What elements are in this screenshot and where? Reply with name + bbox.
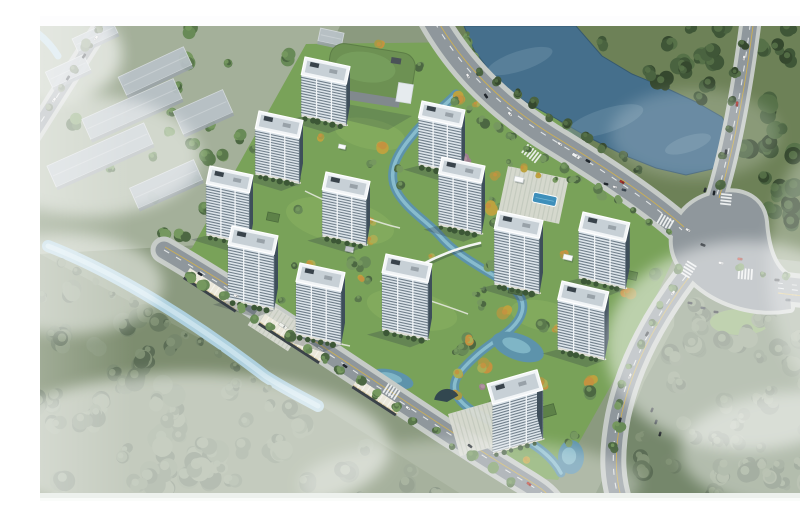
base-hedge: [593, 281, 598, 286]
base-hedge: [284, 180, 290, 186]
vehicle-body: [743, 55, 746, 60]
base-hedge: [579, 354, 584, 359]
tree-highlight: [508, 133, 512, 137]
tree-highlight: [546, 113, 550, 117]
tree-highlight: [521, 166, 524, 169]
tree-highlight: [639, 432, 644, 437]
tree-highlight: [159, 228, 165, 234]
base-hedge: [230, 300, 236, 306]
tree-highlight: [359, 276, 362, 279]
tree-highlight: [784, 52, 790, 58]
tree-highlight: [477, 69, 481, 73]
tree-highlight: [233, 363, 237, 367]
base-hedge: [523, 290, 529, 296]
tree-highlight: [377, 142, 382, 147]
tree-highlight: [561, 164, 565, 168]
tree-highlight: [705, 79, 711, 85]
tree-highlight: [615, 197, 618, 200]
tree-highlight: [305, 345, 309, 349]
tree-highlight: [554, 326, 557, 329]
tree-highlight: [586, 387, 591, 392]
tree-highlight: [507, 160, 510, 163]
tree-highlight: [452, 98, 456, 102]
tree-highlight: [491, 219, 495, 223]
tree-highlight: [637, 464, 646, 473]
base-hedge: [330, 342, 336, 348]
tree-highlight: [554, 178, 556, 180]
base-hedge: [290, 182, 295, 187]
tree-highlight: [541, 155, 545, 159]
base-hedge: [324, 236, 329, 241]
tree-highlight: [166, 338, 175, 347]
base-hedge: [271, 178, 275, 182]
tree-highlight: [611, 443, 615, 447]
tree-highlight: [464, 33, 467, 36]
tree-highlight: [479, 118, 484, 123]
base-hedge: [567, 351, 573, 357]
tree-highlight: [215, 351, 218, 354]
tree-highlight: [771, 183, 779, 191]
tree-highlight: [596, 39, 602, 45]
tree-highlight: [434, 427, 438, 431]
tree-highlight: [615, 402, 619, 406]
tree-highlight: [666, 39, 672, 45]
tree-highlight: [253, 316, 257, 320]
base-hedge: [344, 241, 349, 246]
base-hedge: [338, 124, 343, 129]
tree-highlight: [561, 251, 564, 254]
base-hedge: [472, 232, 478, 238]
tree-highlight: [570, 177, 573, 180]
tree-highlight: [348, 259, 353, 264]
vehicle-windshield: [743, 58, 745, 59]
base-hedge: [257, 306, 263, 312]
tree-highlight: [480, 363, 486, 369]
tree-highlight: [455, 370, 460, 375]
tree-highlight: [495, 79, 499, 83]
base-hedge: [323, 121, 327, 125]
tree-highlight: [285, 332, 290, 337]
tree-highlight: [667, 229, 670, 232]
bottom-frame-edge: [40, 498, 800, 501]
tree-highlight: [396, 165, 401, 170]
tree-highlight: [221, 292, 225, 296]
tree-highlight: [474, 292, 477, 295]
tree-highlight: [398, 182, 402, 186]
base-hedge: [264, 307, 270, 313]
aerial-rendering-frame: [40, 16, 800, 501]
tree-highlight: [293, 264, 296, 267]
tree-highlight: [357, 375, 361, 379]
base-hedge: [329, 122, 335, 128]
tree-highlight: [587, 377, 592, 382]
tree-highlight: [465, 337, 470, 342]
base-hedge: [358, 244, 363, 249]
tree-highlight: [366, 278, 369, 281]
tree-highlight: [571, 432, 575, 436]
base-hedge: [305, 337, 310, 342]
tree-highlight: [789, 151, 798, 160]
tree-highlight: [485, 203, 491, 209]
tree-highlight: [740, 40, 745, 45]
tree-highlight: [763, 97, 771, 105]
tree-highlight: [537, 321, 542, 326]
tree-highlight: [531, 99, 535, 103]
tree-highlight: [515, 90, 519, 94]
base-hedge: [573, 352, 579, 358]
tree-highlight: [357, 296, 360, 299]
base-hedge: [277, 178, 283, 184]
tree-highlight: [182, 332, 185, 335]
tree-highlight: [666, 459, 672, 465]
base-hedge: [251, 305, 257, 311]
base-hedge: [222, 239, 226, 243]
tree-highlight: [369, 161, 373, 165]
base-hedge: [603, 284, 607, 288]
tree-highlight: [296, 207, 300, 211]
base-hedge: [399, 334, 403, 338]
base-hedge: [439, 226, 443, 230]
tree-highlight: [564, 121, 568, 125]
base-hedge: [581, 278, 587, 284]
base-hedge: [459, 229, 465, 235]
tree-highlight: [759, 171, 767, 179]
base-hedge: [516, 289, 521, 294]
mist-patch: [610, 89, 780, 179]
base-hedge: [214, 237, 218, 241]
tree-highlight: [412, 417, 416, 421]
base-hedge: [411, 336, 417, 342]
base-hedge: [383, 330, 389, 336]
tree-highlight: [594, 185, 599, 190]
tree-highlight: [495, 125, 499, 129]
tree-highlight: [238, 305, 242, 309]
tree-highlight: [201, 150, 208, 157]
tree-highlight: [377, 42, 381, 46]
tree-highlight: [615, 422, 619, 426]
community-entry: [396, 82, 414, 103]
base-hedge: [614, 286, 619, 291]
tree-highlight: [477, 300, 482, 305]
base-hedge: [311, 339, 315, 343]
tree-highlight: [279, 298, 282, 301]
vehicle: [743, 55, 746, 60]
tree: [165, 346, 176, 357]
base-hedge: [501, 285, 507, 291]
tree-highlight: [733, 69, 737, 73]
tree-highlight: [480, 385, 483, 388]
tree-highlight: [373, 390, 378, 395]
tree-highlight: [487, 260, 492, 265]
base-hedge: [352, 243, 357, 248]
tree-highlight: [198, 340, 201, 343]
top-frame-band: [40, 16, 800, 26]
tree-highlight: [235, 132, 241, 138]
tree-highlight: [176, 229, 183, 236]
tree-highlight: [395, 403, 399, 407]
tree-highlight: [706, 44, 714, 52]
base-hedge: [263, 175, 269, 181]
left-haze: [40, 26, 135, 493]
base-hedge: [426, 167, 431, 172]
tree-highlight: [282, 51, 289, 58]
tree-highlight: [716, 181, 720, 185]
base-hedge: [258, 175, 262, 179]
tree-highlight: [760, 42, 766, 48]
tree-highlight: [493, 173, 497, 177]
tree-highlight: [526, 147, 529, 150]
tree-highlight: [636, 452, 643, 459]
base-hedge: [325, 342, 329, 346]
tree-highlight: [474, 102, 477, 105]
tree-highlight: [567, 440, 570, 443]
base-hedge: [589, 356, 594, 361]
tree-highlight: [599, 144, 603, 148]
tree-highlight: [466, 107, 469, 110]
tree-highlight: [679, 65, 685, 71]
base-hedge: [561, 350, 565, 354]
tree-highlight: [646, 219, 650, 223]
vehicle-windshield: [713, 193, 714, 194]
tree-highlight: [338, 368, 341, 371]
tree-highlight: [583, 133, 587, 137]
tree-highlight: [454, 349, 457, 352]
tree: [241, 308, 246, 313]
tree-highlight: [185, 274, 190, 279]
base-hedge: [586, 280, 591, 285]
tree-highlight: [318, 134, 322, 138]
base-hedge: [594, 358, 599, 363]
tree-highlight: [489, 196, 493, 200]
base-hedge: [314, 118, 320, 124]
tree-highlight: [150, 317, 159, 326]
tree-highlight: [694, 54, 701, 61]
base-hedge: [406, 336, 410, 340]
tree-highlight: [537, 173, 540, 176]
base-hedge: [510, 288, 515, 293]
base-hedge: [392, 332, 397, 337]
base-hedge: [609, 285, 614, 290]
base-hedge: [419, 165, 425, 171]
tree-highlight: [225, 60, 229, 64]
base-hedge: [447, 227, 452, 232]
tree-highlight: [169, 108, 173, 112]
tree-highlight: [321, 356, 325, 360]
tree-highlight: [768, 204, 775, 211]
tree-highlight: [217, 151, 222, 156]
tree-highlight: [135, 349, 145, 359]
scene-canvas: [40, 16, 800, 501]
tree-highlight: [417, 62, 421, 66]
base-hedge: [336, 239, 342, 245]
tree-highlight: [200, 284, 205, 289]
base-hedge: [318, 340, 324, 346]
tree-highlight: [165, 320, 168, 323]
base-hedge: [465, 231, 471, 237]
base-hedge: [297, 335, 303, 341]
tree-highlight: [772, 43, 778, 49]
base-hedge: [208, 236, 213, 241]
tree-highlight: [502, 309, 508, 315]
base-hedge: [528, 291, 535, 298]
base-hedge: [452, 228, 458, 234]
base-hedge: [418, 337, 424, 343]
tree-highlight: [657, 76, 664, 83]
tree-highlight: [631, 208, 634, 211]
tree-highlight: [645, 67, 651, 73]
tree-highlight: [430, 255, 433, 258]
tree-highlight: [268, 323, 272, 327]
